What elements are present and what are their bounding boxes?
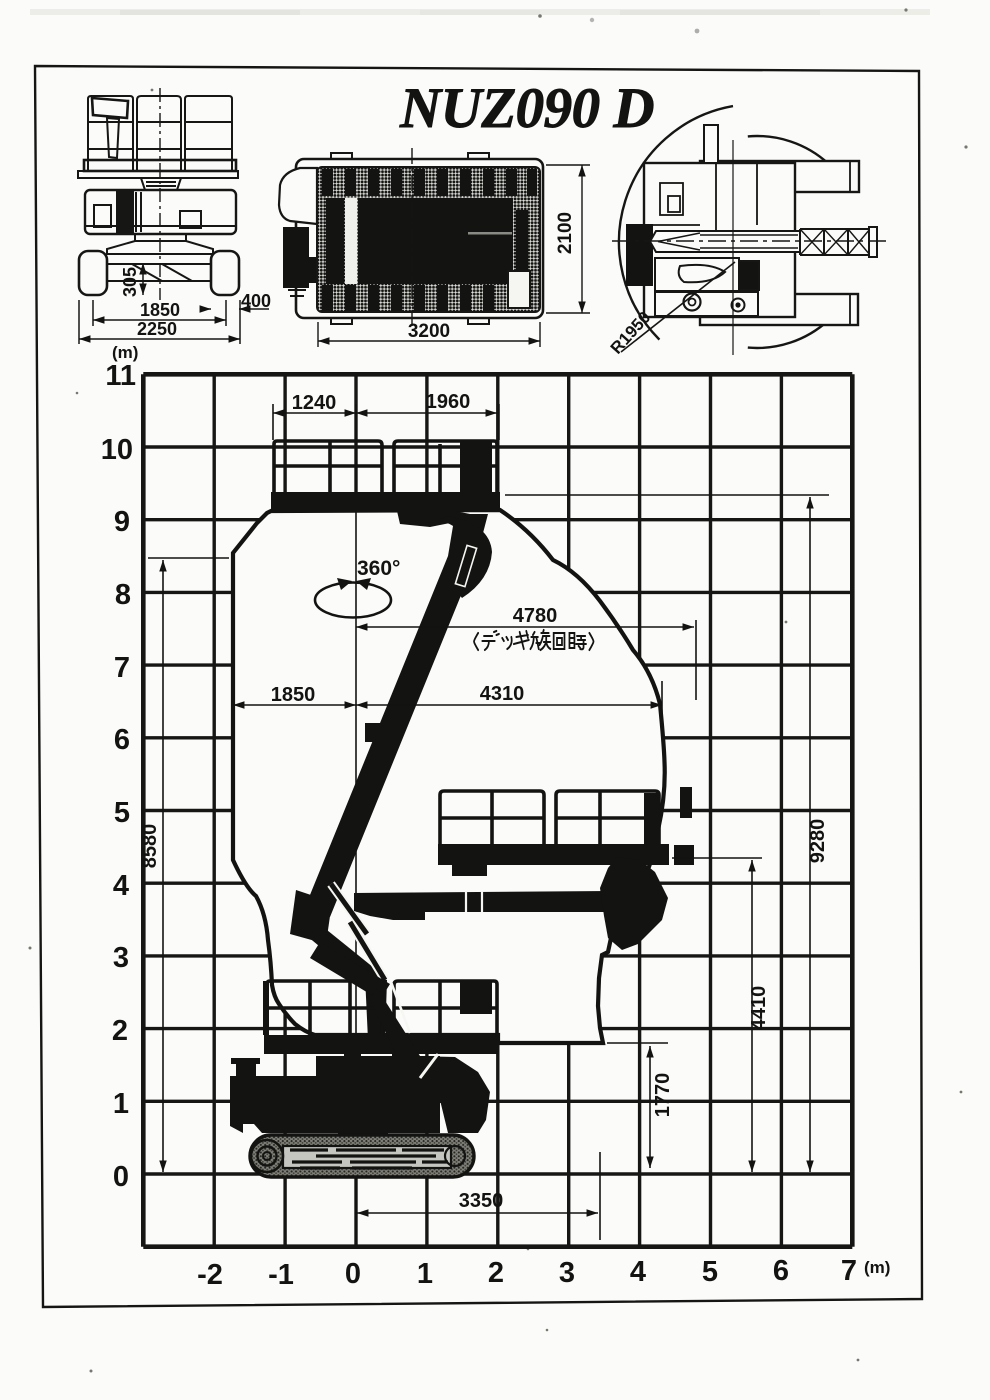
svg-text:360°: 360°	[357, 557, 400, 580]
svg-text:400: 400	[241, 291, 271, 311]
svg-text:0: 0	[345, 1258, 361, 1290]
svg-text:2: 2	[112, 1015, 128, 1047]
svg-text:4410: 4410	[748, 986, 770, 1031]
svg-text:2100: 2100	[555, 212, 576, 254]
svg-text:0: 0	[113, 1161, 129, 1193]
svg-text:2: 2	[488, 1257, 504, 1289]
svg-text:7: 7	[114, 652, 130, 684]
svg-text:1770: 1770	[652, 1073, 674, 1118]
svg-text:1850: 1850	[271, 684, 316, 706]
svg-text:7: 7	[841, 1255, 857, 1287]
svg-text:5: 5	[702, 1256, 718, 1288]
svg-text:305: 305	[120, 267, 140, 297]
svg-text:1: 1	[417, 1258, 433, 1290]
svg-text:3350: 3350	[459, 1190, 504, 1212]
svg-text:8580: 8580	[139, 824, 161, 869]
svg-text:4310: 4310	[480, 683, 525, 705]
svg-text:1: 1	[113, 1088, 129, 1120]
svg-text:NUZ090 D: NUZ090 D	[399, 77, 654, 140]
svg-text:1850: 1850	[140, 300, 180, 320]
svg-text:2250: 2250	[137, 319, 177, 339]
svg-text:3: 3	[113, 942, 129, 974]
svg-text:4780: 4780	[513, 605, 558, 627]
svg-text:(m): (m)	[112, 343, 138, 362]
svg-text:10: 10	[101, 434, 133, 466]
svg-text:1960: 1960	[426, 391, 471, 413]
svg-text:9280: 9280	[807, 819, 829, 864]
svg-text:4: 4	[113, 870, 129, 902]
svg-text:-2: -2	[197, 1259, 223, 1291]
svg-text:9: 9	[114, 506, 130, 538]
svg-text:3: 3	[559, 1257, 575, 1289]
svg-text:-1: -1	[268, 1259, 294, 1291]
svg-text:6: 6	[114, 724, 130, 756]
svg-text:3200: 3200	[408, 321, 450, 342]
svg-text:5: 5	[114, 797, 130, 829]
svg-text:(m): (m)	[864, 1258, 890, 1277]
svg-text:4: 4	[630, 1256, 646, 1288]
svg-text:6: 6	[773, 1255, 789, 1287]
svg-text:11: 11	[105, 360, 136, 392]
svg-text:1240: 1240	[292, 392, 337, 414]
svg-text:8: 8	[115, 579, 131, 611]
